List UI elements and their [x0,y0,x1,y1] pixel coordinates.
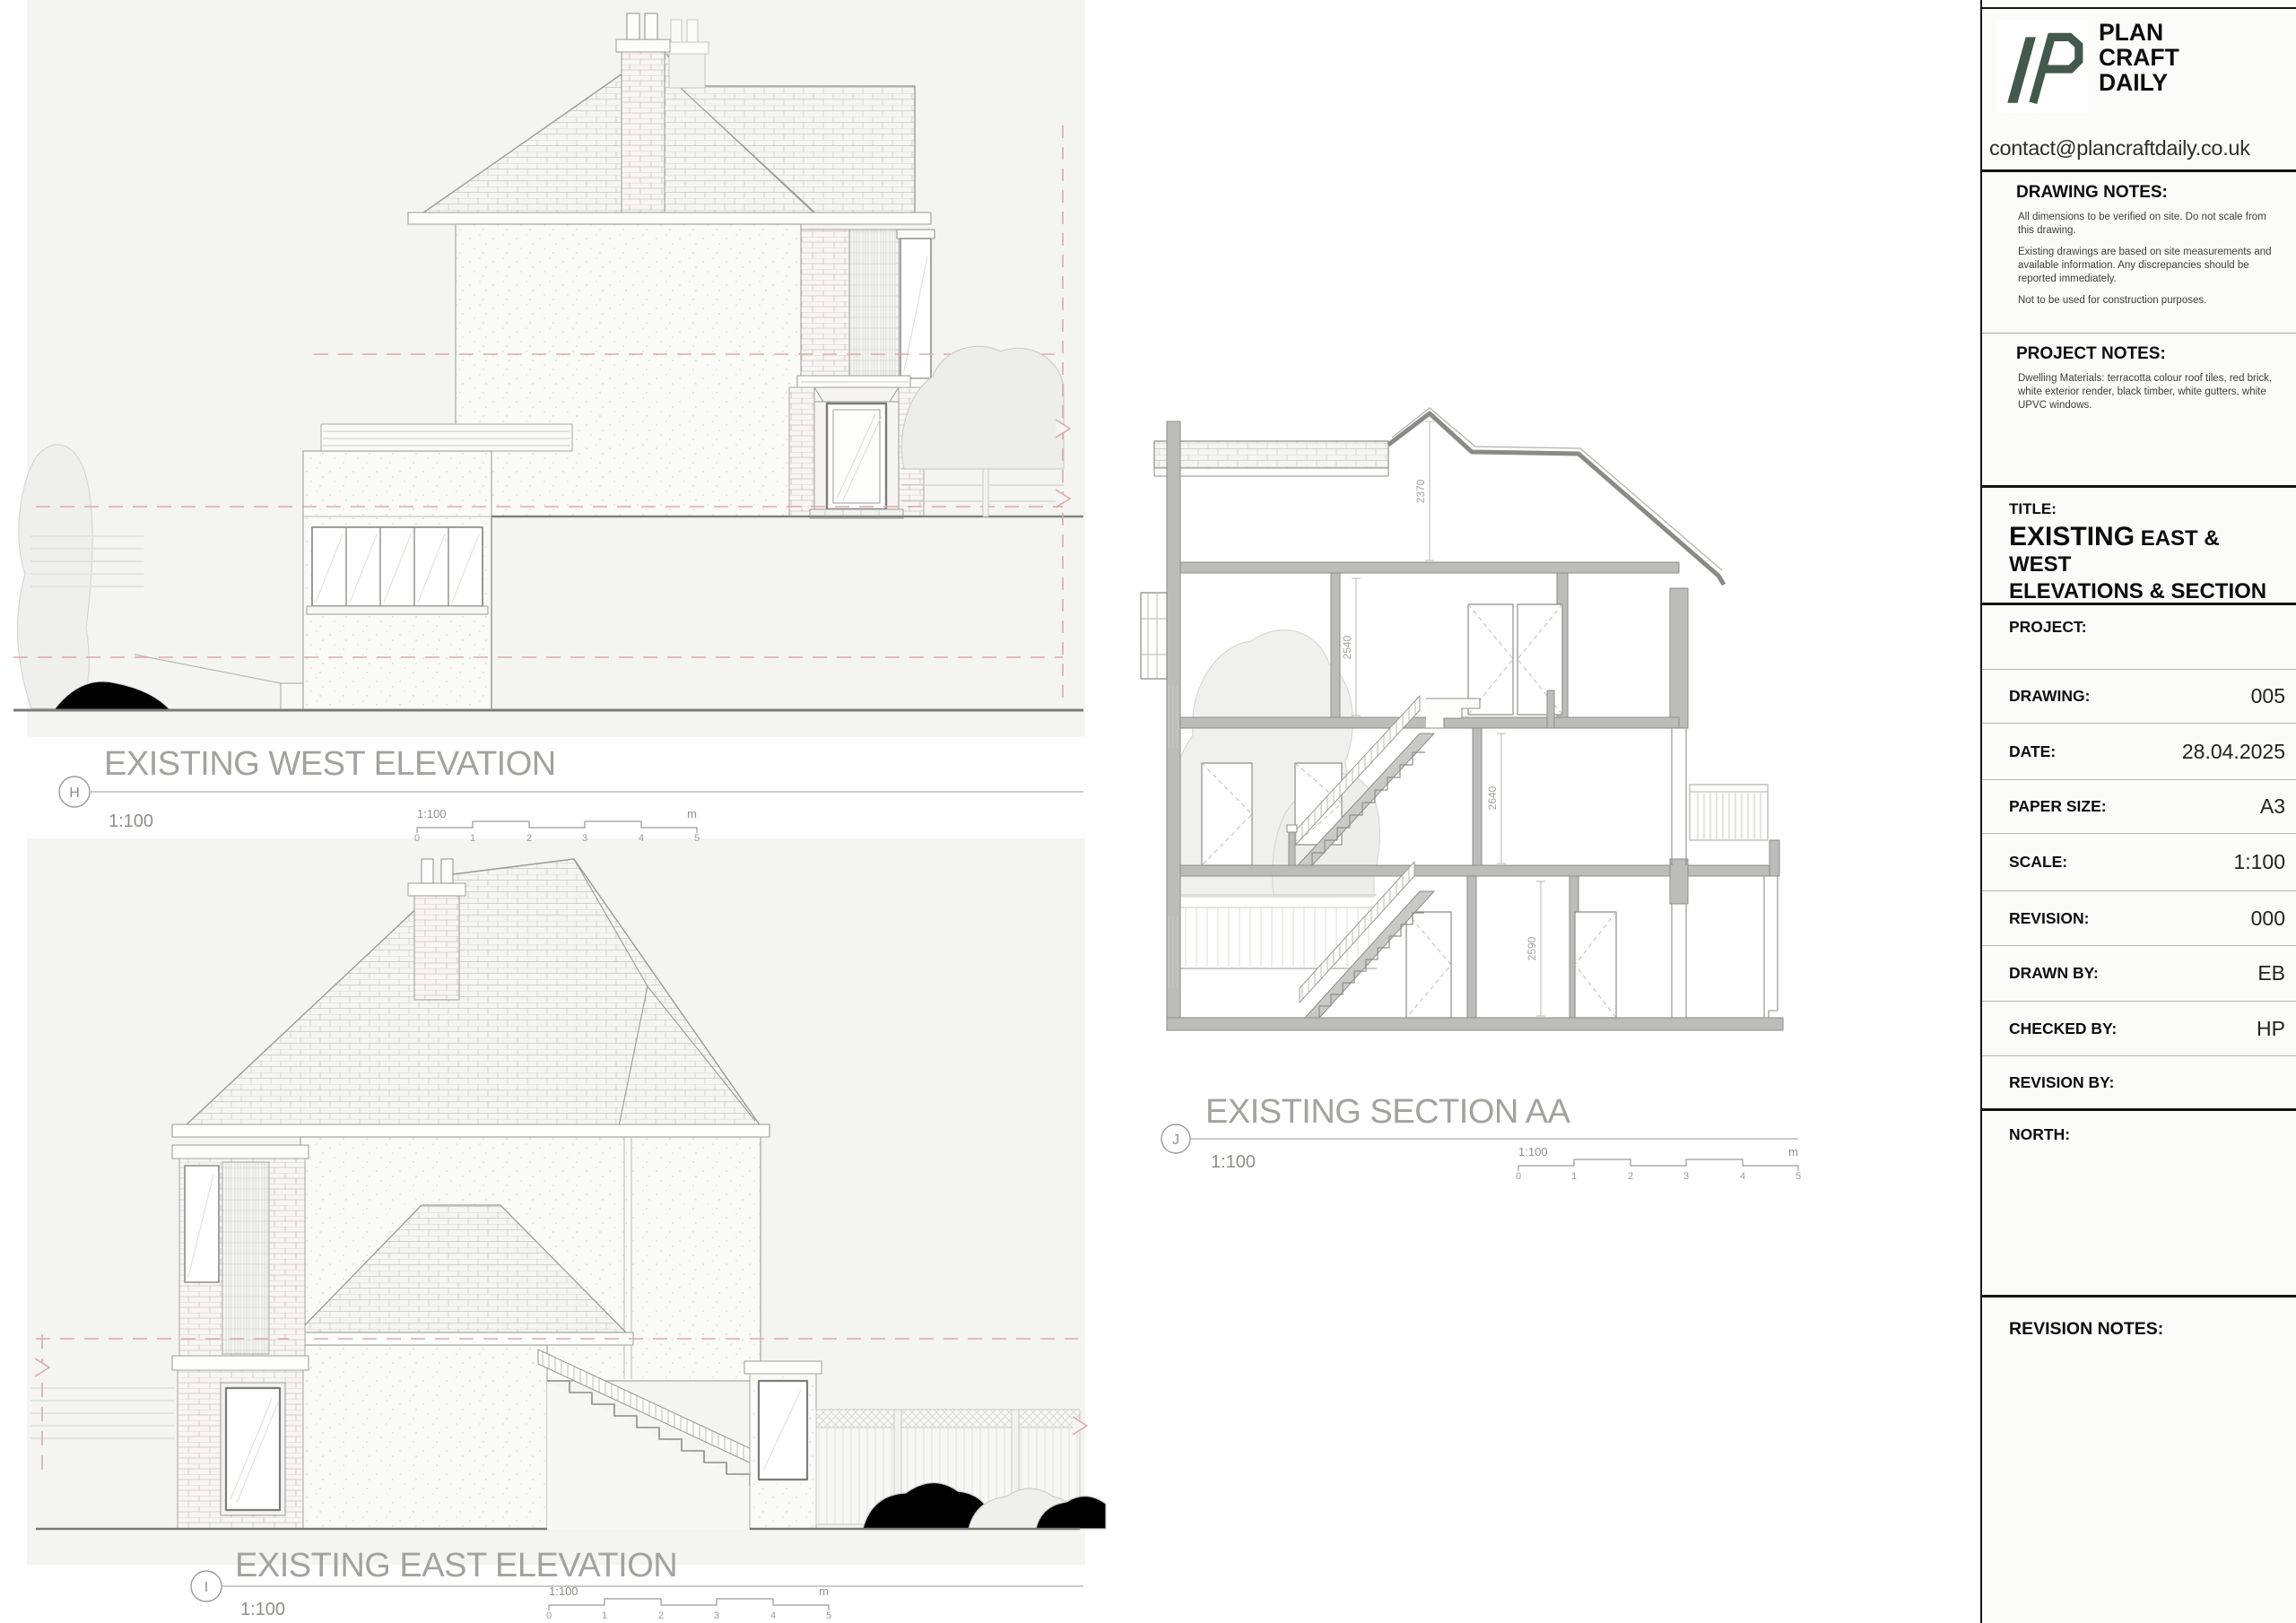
bay-timber-panel [222,1162,269,1354]
brand-name-line: CRAFT [2099,45,2179,70]
door-pilaster [814,402,827,509]
scalebar-tick: 0 [414,833,420,844]
field-row-revision: REVISION: 000 [1982,891,2296,946]
scalebar-tick: 4 [639,833,644,844]
project-notes-section: PROJECT NOTES: Dwelling Materials: terra… [1982,334,2296,488]
sheet-title-section: TITLE: EXISTING EAST & WEST ELEVATIONS &… [1982,488,2296,605]
scalebar-tick: 4 [1740,1171,1745,1182]
field-row-revision-by: REVISION BY: [1982,1056,2296,1111]
logo-icon [1996,20,2088,113]
scale-bar: 1:100 m 0 1 2 3 4 5 [546,1584,831,1621]
trellis-band [816,1410,1080,1428]
field-label: REVISION: [2009,909,2089,928]
scale-bar: 1:100 m 0 1 2 3 4 5 [414,807,700,844]
rear-chimney-pot [687,20,698,42]
reference-letter: I [204,1580,208,1595]
drawing-note: All dimensions to be verified on site. D… [2018,211,2283,238]
bay-window-head [897,230,935,239]
field-value: EB [2257,961,2285,985]
scalebar-tick: 5 [1796,1171,1801,1182]
scale-bar: 1:100 m 0 1 2 3 4 5 [1516,1145,1801,1182]
scalebar-tick: 1 [602,1610,607,1621]
door-pilaster [886,402,899,509]
field-row-date: DATE: 28.04.2025 [1982,724,2296,780]
west-chimney-pot [627,13,639,39]
west-fascia [408,213,931,224]
sheet-title-strong: EXISTING [2009,522,2135,551]
bay-storey-band [172,1356,309,1370]
fence-post [983,469,988,516]
bay-brick-pier [789,387,814,516]
brand-name-line: DAILY [2099,70,2179,95]
scalebar-unit: m [687,807,697,820]
scalebar-tick: 5 [826,1610,831,1621]
scalebar-tick: 1 [470,833,475,844]
field-label: CHECKED BY: [2009,1020,2117,1038]
section-flat-roof-fascia [1154,468,1388,476]
newel-cap [1287,825,1297,832]
tree [18,445,92,708]
title-label: TITLE: [2009,500,2285,518]
drawing-title: EXISTING EAST ELEVATION [235,1547,677,1584]
east-lower-wall [300,1345,547,1529]
title-block-panel: PLAN CRAFT DAILY contact@plancraftdaily.… [1980,0,2296,1623]
panel-top-rule [1982,0,2296,9]
field-label: SCALE: [2009,853,2067,872]
field-row-checked-by: CHECKED BY: HP [1982,1002,2296,1056]
drawing-scale: 1:100 [1211,1152,1256,1172]
field-row-project: PROJECT: [1982,605,2296,670]
field-label: DATE: [2009,742,2056,761]
west-elevation-label: H EXISTING WEST ELEVATION 1:100 1:100 m … [59,745,1083,844]
scalebar-tick: 2 [1628,1171,1633,1182]
dim-ground-floor: 2590 [1526,936,1538,960]
field-label: PROJECT: [2009,618,2087,637]
scalebar-unit: m [819,1584,829,1598]
brand-header: PLAN CRAFT DAILY [1982,9,2296,127]
scalebar-tick: 2 [658,1610,664,1621]
scalebar-line [1518,1159,1798,1171]
field-value: A3 [2260,794,2285,819]
scalebar-tick: 2 [526,833,532,844]
reference-letter: H [69,785,80,801]
field-value: 000 [2251,907,2285,931]
scalebar-scale: 1:100 [549,1584,578,1598]
bay-roof-band [172,1145,309,1159]
rear-chimney-body [669,54,705,88]
newel-post [1289,832,1295,865]
section-flat-roof-tiles [1154,441,1388,468]
drawing-notes-heading: DRAWING NOTES: [2016,183,2283,203]
contact-email: contact@plancraftdaily.co.uk [1982,127,2296,172]
field-row-paper-size: PAPER SIZE: A3 [1982,780,2296,834]
newel-post [1547,690,1554,728]
dim-mid-floor: 2640 [1486,785,1499,810]
east-chimney-pot [422,859,433,883]
north-section: NORTH: [1982,1111,2296,1298]
bay-brick-pier [801,230,849,384]
brand-name-line: PLAN [2099,20,2179,45]
brand-name: PLAN CRAFT DAILY [2099,20,2179,95]
field-label: REVISION BY: [2009,1073,2114,1092]
east-fascia [172,1124,770,1137]
drawing-scale: 1:100 [109,811,153,831]
scalebar-tick: 5 [694,833,700,844]
scalebar-tick: 4 [770,1610,776,1621]
section-roof-line [1388,413,1724,585]
drawing-notes-section: DRAWING NOTES: All dimensions to be veri… [1982,172,2296,334]
scalebar-tick: 3 [582,833,587,844]
scalebar-tick: 0 [1516,1171,1521,1182]
project-notes-heading: PROJECT NOTES: [2016,344,2283,364]
scalebar-tick: 3 [1683,1171,1689,1182]
west-main-wall [456,224,801,516]
reference-letter: J [1172,1133,1179,1148]
rear-chimney-cap [665,42,709,54]
section-bay-window [1141,593,1167,679]
field-label: PAPER SIZE: [2009,797,2107,816]
scalebar-scale: 1:100 [417,807,447,820]
west-chimney-pot [645,13,657,39]
east-elevation-drawing [27,838,1106,1565]
drawings-canvas: 2370 2540 2640 2590 H EXISTING WEST ELEV… [0,0,1980,1623]
field-label: DRAWN BY: [2009,964,2099,983]
field-value: 28.04.2025 [2182,740,2285,764]
scalebar-scale: 1:100 [1518,1145,1548,1159]
field-label: DRAWING: [2009,687,2090,706]
drawing-title: EXISTING WEST ELEVATION [104,745,556,783]
sheet-title-line1: EXISTING EAST & WEST [2009,522,2285,577]
bay-timber-panel [849,230,899,384]
scalebar-unit: m [1788,1145,1798,1159]
field-value: HP [2257,1017,2285,1041]
revision-notes-section: REVISION NOTES: [1982,1298,2296,1623]
west-chimney-cap [616,39,670,52]
scalebar-tick: 1 [1571,1171,1577,1182]
east-chimney-body [414,896,459,1000]
scalebar-tick: 3 [714,1610,719,1621]
door-lintel [814,387,899,402]
dim-roof-height: 2370 [1414,479,1427,503]
sheet-title-line2: ELEVATIONS & SECTION [2009,579,2285,604]
section-drawing: 2370 2540 2640 2590 [1141,408,1783,1030]
drawing-title: EXISTING SECTION AA [1205,1093,1571,1131]
drawing-note: Not to be used for construction purposes… [2018,294,2283,308]
project-note: Dwelling Materials: terracotta colour ro… [2018,372,2283,412]
bay-lower-window [226,1388,280,1510]
drawing-note: Existing drawings are based on site meas… [2018,246,2283,286]
north-label: NORTH: [2009,1125,2070,1143]
plancraftdaily-logo [1996,20,2088,113]
field-row-drawing: DRAWING: 005 [1982,670,2296,724]
dim-top-floor: 2540 [1341,635,1353,659]
east-chimney-pot [441,859,453,883]
porch-head [744,1361,822,1374]
drawing-scale: 1:100 [240,1600,285,1619]
scalebar-line [417,821,697,833]
section-label: J EXISTING SECTION AA 1:100 1:100 m 0 1 … [1161,1093,1801,1182]
revision-notes-label: REVISION NOTES: [2009,1319,2163,1339]
scalebar-tick: 0 [546,1610,552,1621]
field-value: 1:100 [2233,850,2285,874]
field-value: 005 [2251,684,2285,708]
west-chimney-body [622,51,665,213]
scalebar-line [549,1599,829,1610]
section-roof-top-line [1392,408,1722,570]
rear-chimney-pot [671,20,682,42]
extension-sill [307,606,488,614]
east-chimney-cap [408,883,465,896]
section-poche [1167,421,1783,1030]
field-row-scale: SCALE: 1:100 [1982,834,2296,891]
extension-parapet [321,424,572,451]
drawing-sheet: 2370 2540 2640 2590 H EXISTING WEST ELEV… [0,0,2296,1623]
field-row-drawn-by: DRAWN BY: EB [1982,946,2296,1002]
extension-window [312,527,483,606]
